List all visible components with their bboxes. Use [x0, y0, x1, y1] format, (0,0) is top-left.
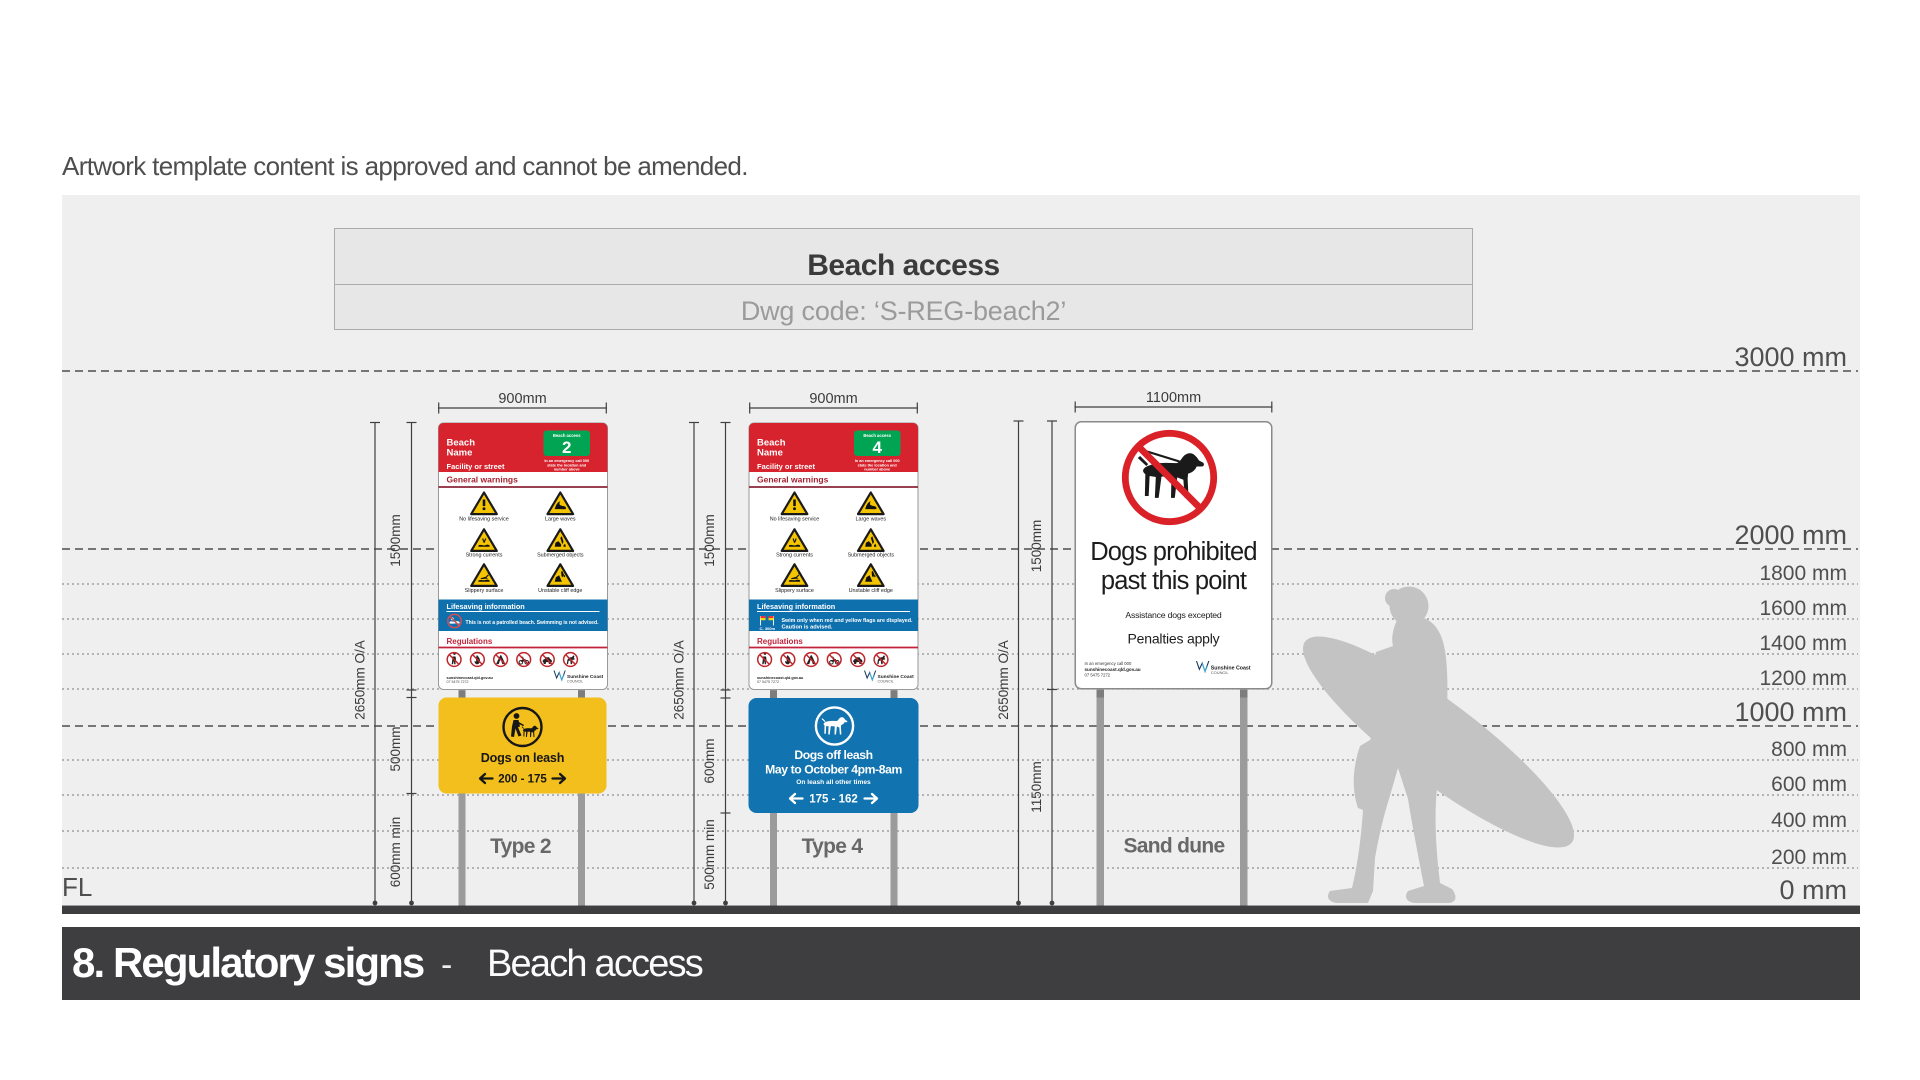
svg-text:600 mm: 600 mm — [1771, 773, 1847, 796]
svg-text:number above: number above — [864, 468, 890, 472]
svg-text:1600 mm: 1600 mm — [1759, 597, 1847, 620]
svg-text:Type 4: Type 4 — [802, 835, 864, 858]
svg-text:This is not a patrolled beach.: This is not a patrolled beach. Swimming … — [466, 620, 599, 626]
svg-text:2650mm O/A: 2650mm O/A — [996, 640, 1011, 720]
svg-text:200 mm: 200 mm — [1771, 846, 1847, 869]
svg-text:Type 2: Type 2 — [490, 835, 551, 858]
svg-text:175 - 162: 175 - 162 — [809, 794, 858, 806]
svg-text:Swim only when red and yellow: Swim only when red and yellow flags are … — [782, 618, 913, 624]
svg-text:General warnings: General warnings — [757, 475, 829, 485]
svg-text:Lifesaving information: Lifesaving information — [757, 602, 835, 611]
svg-text:3000 mm: 3000 mm — [1734, 342, 1847, 372]
svg-text:200 - 175: 200 - 175 — [498, 774, 547, 786]
svg-text:Unstable cliff edge: Unstable cliff edge — [538, 588, 582, 594]
svg-text:C- 300m: C- 300m — [760, 626, 776, 631]
svg-text:0 mm: 0 mm — [1780, 875, 1848, 905]
svg-text:600mm: 600mm — [702, 738, 717, 783]
svg-text:2650mm O/A: 2650mm O/A — [672, 640, 687, 720]
svg-text:07 5475 7272: 07 5475 7272 — [757, 680, 779, 684]
svg-text:Slippery surface: Slippery surface — [465, 588, 504, 594]
svg-text:07 5475 7272: 07 5475 7272 — [447, 680, 469, 684]
svg-text:Penalties apply: Penalties apply — [1128, 631, 1220, 647]
svg-text:900mm: 900mm — [498, 391, 546, 407]
svg-text:Strong currents: Strong currents — [466, 553, 503, 559]
svg-text:1200 mm: 1200 mm — [1759, 667, 1847, 690]
svg-text:1500mm: 1500mm — [388, 514, 403, 567]
svg-text:800 mm: 800 mm — [1771, 738, 1847, 761]
svg-text:In an emergency call 000: In an emergency call 000 — [1085, 661, 1132, 666]
svg-text:Regulations: Regulations — [757, 637, 803, 646]
svg-text:Regulations: Regulations — [447, 637, 493, 646]
svg-text:500mm min: 500mm min — [702, 819, 717, 890]
svg-text:1800 mm: 1800 mm — [1759, 562, 1847, 585]
svg-text:past this point: past this point — [1101, 567, 1247, 595]
svg-text:600mm min: 600mm min — [388, 817, 403, 888]
svg-text:1100mm: 1100mm — [1146, 390, 1201, 406]
svg-text:2: 2 — [562, 438, 571, 457]
svg-text:900mm: 900mm — [809, 391, 857, 407]
svg-text:Strong currents: Strong currents — [776, 553, 813, 559]
svg-text:No lifesaving service: No lifesaving service — [459, 517, 508, 523]
svg-text:Name: Name — [757, 448, 783, 459]
svg-text:number above: number above — [554, 468, 580, 472]
svg-text:1500mm: 1500mm — [702, 514, 717, 567]
svg-text:Dogs prohibited: Dogs prohibited — [1090, 538, 1257, 566]
svg-text:1150mm: 1150mm — [1029, 761, 1044, 813]
svg-text:COUNCIL: COUNCIL — [1211, 670, 1230, 675]
svg-text:Facility or street: Facility or street — [447, 462, 505, 471]
svg-text:2000 mm: 2000 mm — [1734, 520, 1847, 550]
svg-text:General warnings: General warnings — [447, 475, 519, 485]
svg-text:Dogs off leash: Dogs off leash — [794, 748, 872, 762]
svg-text:Name: Name — [447, 448, 473, 459]
svg-text:Facility or street: Facility or street — [757, 462, 815, 471]
svg-text:COUNCIL: COUNCIL — [878, 680, 894, 684]
svg-text:No lifesaving service: No lifesaving service — [770, 517, 819, 523]
svg-text:COUNCIL: COUNCIL — [567, 680, 583, 684]
svg-text:2650mm O/A: 2650mm O/A — [353, 640, 368, 720]
svg-text:On leash all other times: On leash all other times — [796, 779, 871, 786]
svg-text:1500mm: 1500mm — [1029, 520, 1044, 573]
svg-text:Large waves: Large waves — [545, 517, 576, 523]
svg-text:May to October 4pm-8am: May to October 4pm-8am — [765, 762, 902, 776]
svg-text:Dogs on leash: Dogs on leash — [481, 751, 564, 765]
svg-text:1400 mm: 1400 mm — [1759, 632, 1847, 655]
svg-text:4: 4 — [872, 438, 882, 457]
svg-text:Caution is advised.: Caution is advised. — [782, 625, 833, 631]
svg-text:500mm: 500mm — [388, 726, 403, 771]
svg-text:Sand dune: Sand dune — [1123, 835, 1224, 858]
svg-text:Submerged objects: Submerged objects — [537, 553, 584, 559]
svg-text:1000 mm: 1000 mm — [1734, 697, 1847, 727]
svg-text:07 5475 7272: 07 5475 7272 — [1085, 673, 1111, 678]
svg-text:sunshinecoast.qld.gov.au: sunshinecoast.qld.gov.au — [1085, 667, 1141, 672]
svg-text:Large waves: Large waves — [856, 517, 887, 523]
svg-text:Unstable cliff edge: Unstable cliff edge — [849, 588, 893, 594]
svg-text:400 mm: 400 mm — [1771, 809, 1847, 832]
svg-text:Slippery surface: Slippery surface — [775, 588, 814, 594]
svg-text:Submerged objects: Submerged objects — [848, 553, 895, 559]
svg-text:FL: FL — [62, 872, 92, 902]
svg-text:Lifesaving information: Lifesaving information — [447, 602, 525, 611]
svg-text:Assistance dogs excepted: Assistance dogs excepted — [1125, 610, 1222, 620]
